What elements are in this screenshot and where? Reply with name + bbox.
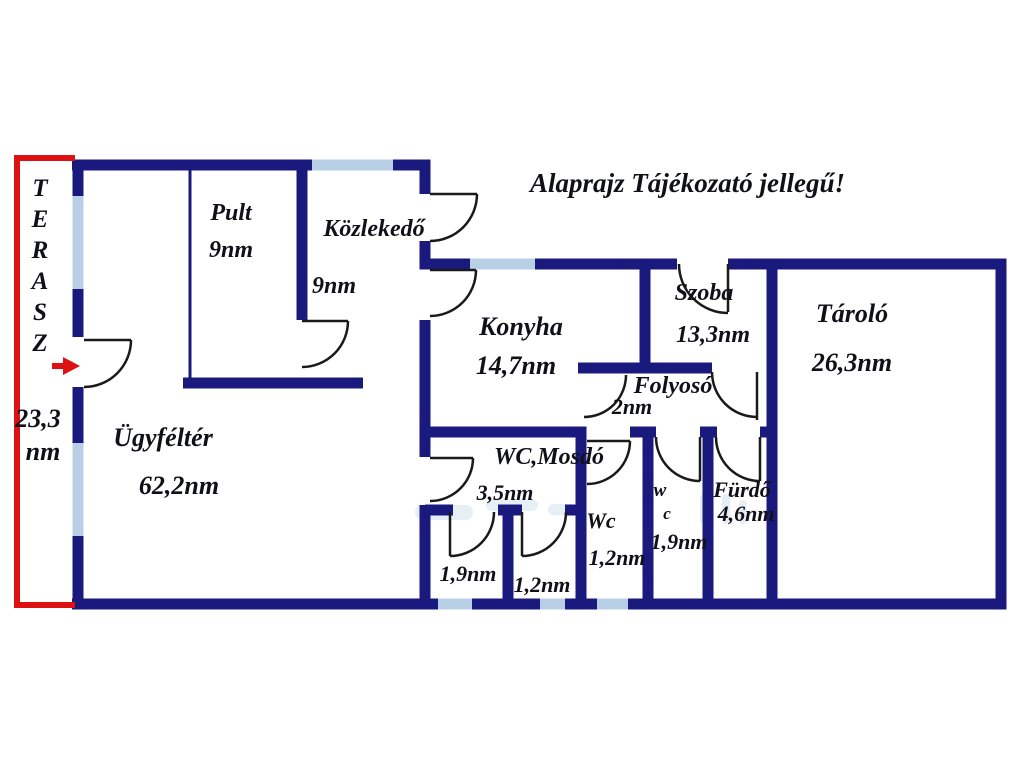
entrance-arrow-icon	[63, 357, 80, 375]
room-area-wc-tiny: 1,9nm	[651, 529, 708, 554]
terrace-letter: R	[31, 237, 49, 264]
room-label-konyha: Konyha	[478, 312, 563, 341]
room-area-ugyfelter: 62,2nm	[139, 471, 219, 500]
room-label-szoba: Szoba	[675, 280, 734, 306]
room-label-pult: Pult	[209, 200, 253, 226]
page-title: Alaprajz Tájékozató jellegű!	[528, 168, 845, 198]
terrace-letter: S	[33, 299, 47, 326]
room-label-wc-tiny-c: c	[663, 504, 671, 523]
walls	[72, 160, 1007, 610]
room-label-wc-small: Wc	[586, 508, 616, 533]
room-area-furdo: 4,6nm	[717, 501, 775, 526]
room-area-folyoso: 2nm	[611, 394, 652, 419]
corridor-exterior-door	[430, 194, 477, 241]
labels: Alaprajz Tájékozató jellegű! T E R A S Z…	[14, 168, 892, 597]
room-label-wcmosdo: WC,Mosdó	[494, 444, 604, 470]
entrance-door	[84, 340, 131, 387]
kitchen-door	[430, 270, 476, 316]
room-label-tarolo: Tároló	[816, 299, 888, 328]
cell-mid-door	[522, 512, 566, 556]
room-label-ugyfelter: Ügyféltér	[113, 423, 214, 452]
room-area-kozlekedo: 9nm	[312, 273, 356, 299]
washroom-door	[430, 458, 473, 501]
room-area-pult: 9nm	[209, 237, 253, 263]
terrace-letter: A	[30, 268, 49, 295]
terrace-letter: Z	[31, 330, 47, 357]
room-label-wc-tiny-w: w	[654, 480, 667, 501]
counter-door	[302, 321, 348, 367]
room-area-konyha: 14,7nm	[476, 351, 556, 380]
room-hall-door	[712, 372, 757, 420]
room-area-szoba: 13,3nm	[676, 322, 750, 348]
terrace-letter: T	[32, 175, 49, 202]
terrace-outline	[17, 158, 80, 605]
room-area-wc-small: 1,2nm	[589, 545, 646, 570]
terrace-letter: E	[31, 206, 49, 233]
room-area-cell-left: 1,9nm	[440, 561, 497, 586]
bathroom-door	[716, 437, 760, 481]
terrace-area: 23,3	[14, 404, 61, 433]
terrace-area-unit: nm	[26, 437, 61, 466]
room-area-wcmosdo: 3,5nm	[476, 480, 534, 505]
floor-plan: Alaprajz Tájékozató jellegű! T E R A S Z…	[0, 0, 1024, 768]
floor-plan-page: Alaprajz Tájékozató jellegű! T E R A S Z…	[0, 0, 1024, 768]
wc-tiny-door	[656, 437, 700, 481]
room-label-furdo: Fürdő	[712, 477, 772, 502]
room-label-kozlekedo: Közlekedő	[322, 216, 426, 242]
room-area-cell-mid: 1,2nm	[514, 572, 571, 597]
room-area-tarolo: 26,3nm	[811, 348, 892, 377]
